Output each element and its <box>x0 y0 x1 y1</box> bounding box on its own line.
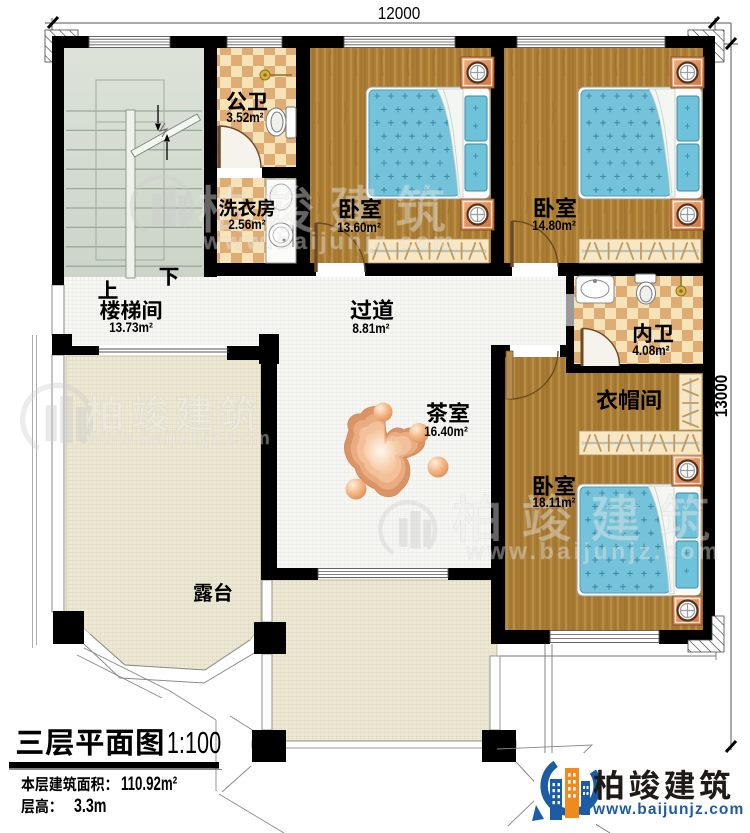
svg-text:16.40m²: 16.40m² <box>424 423 468 439</box>
svg-text:13.60m²: 13.60m² <box>337 219 381 235</box>
svg-text:110.92m²: 110.92m² <box>121 774 178 795</box>
svg-text:18.11m²: 18.11m² <box>532 494 576 510</box>
svg-text:www.baijunjz.com: www.baijunjz.com <box>85 427 271 448</box>
svg-text:3.52m²: 3.52m² <box>226 109 264 125</box>
svg-text:2.56m²: 2.56m² <box>228 216 266 232</box>
svg-text:4.08m²: 4.08m² <box>632 342 670 358</box>
svg-text:8.81m²: 8.81m² <box>352 320 390 336</box>
svg-text:13.73m²: 13.73m² <box>109 319 153 335</box>
svg-text:12000: 12000 <box>378 3 421 23</box>
svg-text:1:100: 1:100 <box>167 725 221 760</box>
svg-text:14.80m²: 14.80m² <box>532 217 576 233</box>
svg-text:3.3m: 3.3m <box>74 795 106 816</box>
svg-text:www.baijunjz.com: www.baijunjz.com <box>592 801 744 818</box>
svg-text:www.baijunjz.com: www.baijunjz.com <box>465 538 722 564</box>
